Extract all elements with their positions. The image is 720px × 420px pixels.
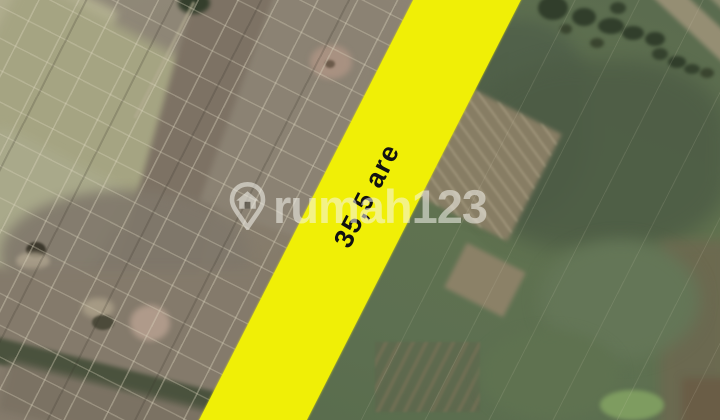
field-patch (682, 378, 720, 420)
tree (652, 48, 668, 60)
bush (92, 315, 114, 330)
bare-soil-spot (325, 60, 335, 68)
bare-soil-spot (16, 252, 50, 270)
tree (668, 56, 686, 68)
tree (560, 24, 572, 34)
field-patch (600, 390, 664, 420)
tree (700, 68, 714, 78)
tree (598, 18, 624, 34)
bare-soil-spot (444, 243, 526, 318)
tree (590, 38, 604, 48)
plot-area-label: 35,5 are (328, 139, 407, 253)
field-patch (480, 330, 620, 420)
tree (610, 2, 626, 14)
plowed-rows (375, 342, 480, 412)
bare-soil-spot (130, 305, 170, 341)
tree (538, 0, 568, 20)
tree (622, 26, 644, 40)
tree (572, 8, 596, 26)
satellite-land-photo: 35,5 are rumah123 (0, 0, 720, 420)
tree (684, 64, 700, 74)
tree (645, 32, 665, 46)
